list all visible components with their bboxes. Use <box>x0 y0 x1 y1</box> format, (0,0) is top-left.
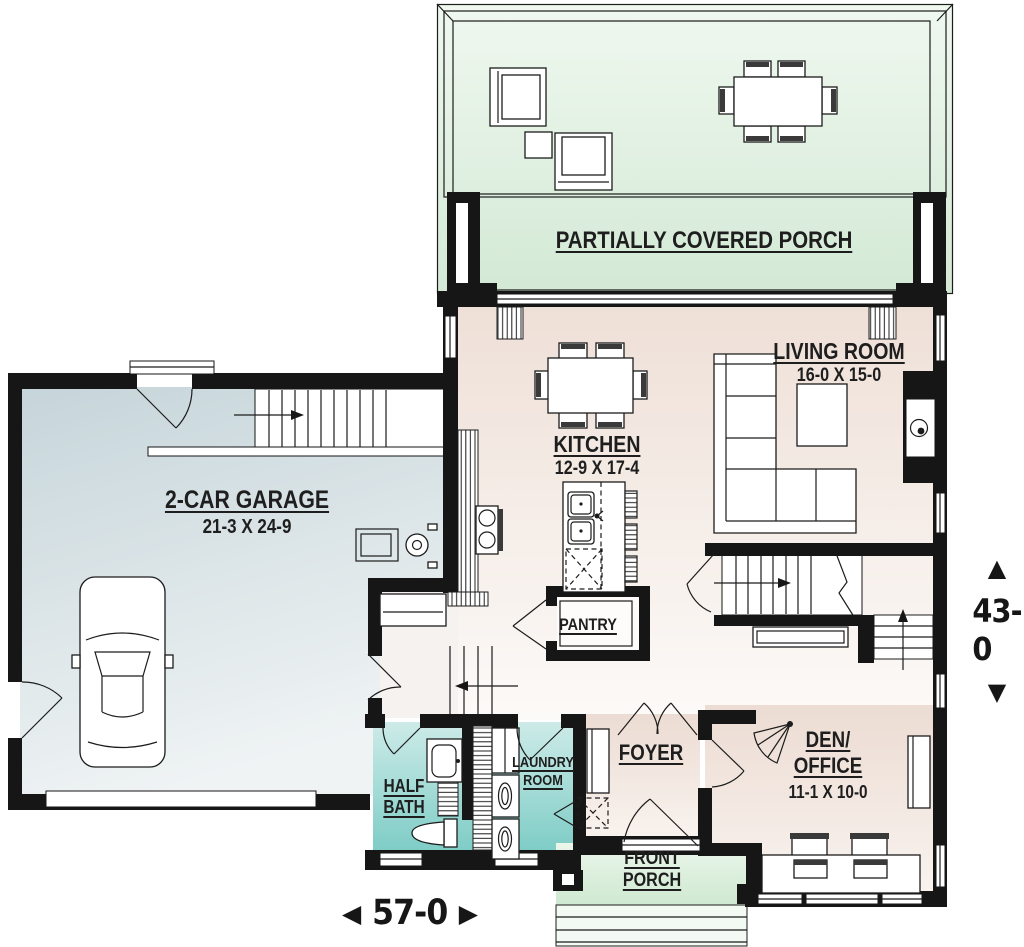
half-bath-label: HALF BATH <box>383 776 424 818</box>
living-room-label: LIVING ROOM 16-0 X 15-0 <box>773 338 904 388</box>
arrow-right-icon: ▶ <box>459 901 478 926</box>
garage-label: 2-CAR GARAGE 21-3 X 24-9 <box>165 486 329 539</box>
room-dims: 12-9 X 17-4 <box>554 458 641 480</box>
height-dimension: ▲ 43-0 ▼ <box>970 556 1024 704</box>
coffee-table <box>797 384 847 446</box>
stair-bench <box>753 627 848 647</box>
kitchen-label: KITCHEN 12-9 X 17-4 <box>554 431 641 481</box>
den-office-label: DEN/ OFFICE 11-1 X 10-0 <box>788 727 867 803</box>
floor-plan-drawing: .w{fill:#161616;} .wh{fill:#ffffff;strok… <box>0 0 1024 947</box>
room-name: FOYER <box>619 740 683 766</box>
front-porch-label: FRONT PORCH <box>623 848 681 893</box>
room-name-line2: ROOM <box>512 772 574 790</box>
height-value: 43-0 <box>972 592 1021 668</box>
rear-porch-label: PARTIALLY COVERED PORCH <box>556 227 853 255</box>
front-porch-steps <box>556 905 747 946</box>
arrow-up-icon: ▲ <box>988 556 1006 580</box>
dryer <box>492 819 519 859</box>
fireplace <box>903 371 947 483</box>
room-dims: 21-3 X 24-9 <box>165 516 329 540</box>
room-name-line1: FRONT <box>623 848 681 870</box>
dining-table <box>548 358 633 413</box>
room-dims: 11-1 X 10-0 <box>788 782 867 803</box>
room-name-line2: OFFICE <box>788 753 867 779</box>
car <box>72 577 173 767</box>
den-cabinet <box>908 736 930 808</box>
room-dims: 16-0 X 15-0 <box>773 365 904 387</box>
bar-stools <box>625 491 637 582</box>
mud-hall-closet <box>380 594 446 626</box>
room-name: PANTRY <box>559 615 617 635</box>
kitchen-counter <box>458 430 478 592</box>
pantry-label: PANTRY <box>559 615 617 635</box>
garage-door <box>46 791 316 807</box>
arrow-down-icon: ▼ <box>988 680 1006 704</box>
bathroom-vanity-sink <box>427 739 462 782</box>
arrow-left-icon: ◀ <box>342 901 361 926</box>
room-name-line2: PORCH <box>623 870 681 892</box>
laundry-label: LAUNDRY ROOM <box>512 754 574 789</box>
width-value: 57-0 <box>372 893 447 933</box>
room-name: KITCHEN <box>554 431 641 458</box>
room-name-line2: BATH <box>383 797 424 818</box>
floor-plan: .w{fill:#161616;} .wh{fill:#ffffff;strok… <box>0 0 1024 947</box>
porch-side-table <box>525 132 552 158</box>
desk <box>762 855 920 893</box>
room-name-line1: HALF <box>383 776 424 797</box>
laundry-cabinet-run <box>473 726 492 850</box>
foyer-label: FOYER <box>619 740 683 766</box>
laundry-appliances <box>492 728 519 859</box>
foyer-bench <box>587 729 609 793</box>
room-name: PARTIALLY COVERED PORCH <box>556 227 853 255</box>
room-name: LIVING ROOM <box>773 338 904 365</box>
porch-armchair <box>555 133 612 190</box>
width-dimension: ◀ 57-0 ▶ <box>342 893 478 933</box>
kitchen-island <box>563 482 637 592</box>
room-name-line1: DEN/ <box>788 727 867 753</box>
porch-armchair <box>490 68 546 126</box>
range-cooktop <box>476 506 503 554</box>
room-name: 2-CAR GARAGE <box>165 486 329 516</box>
room-name-line1: LAUNDRY <box>512 754 574 772</box>
